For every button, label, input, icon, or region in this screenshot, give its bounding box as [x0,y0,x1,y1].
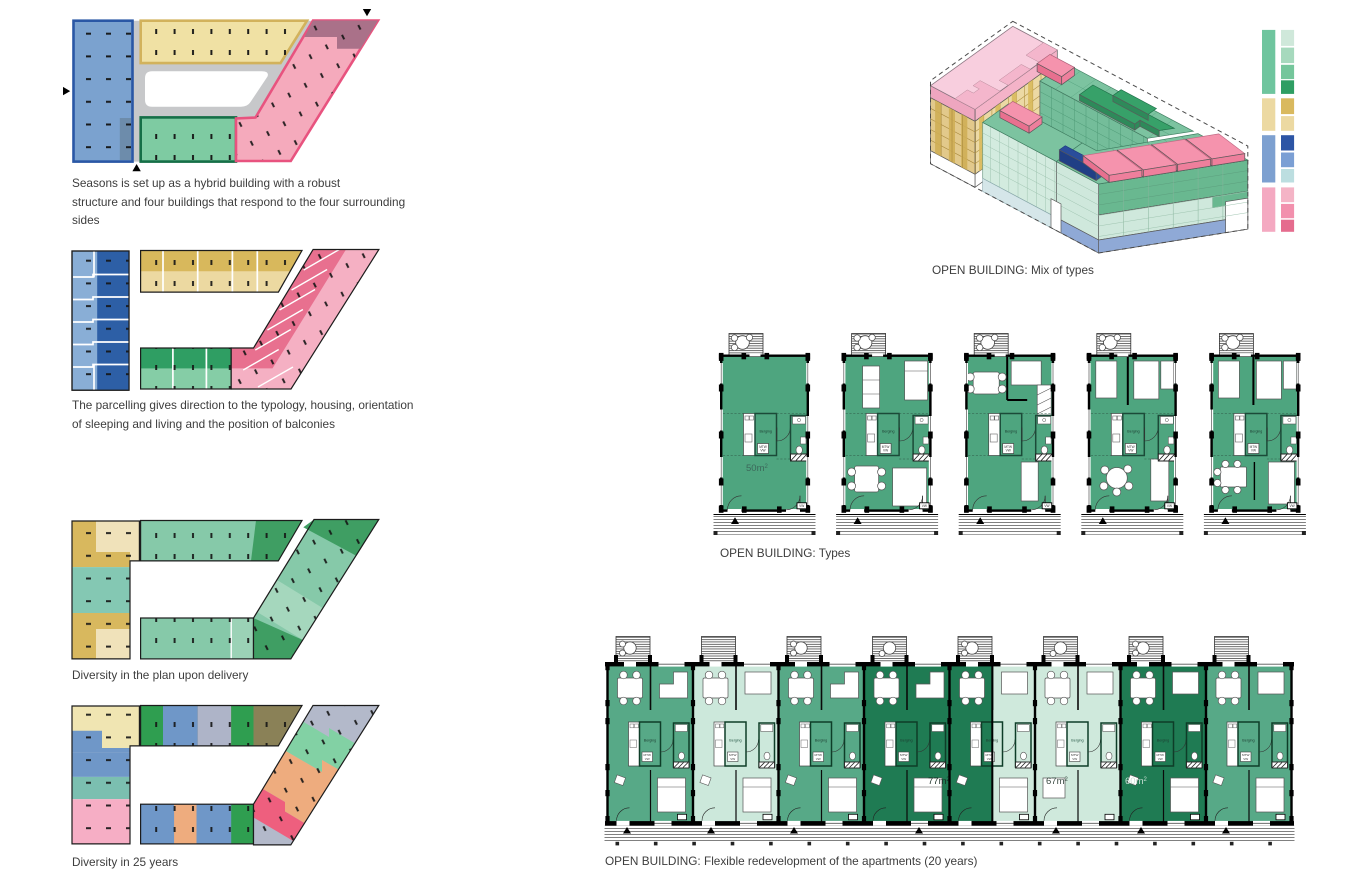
svg-text:VW: VW [799,504,804,508]
svg-text:VW: VW [1128,449,1133,453]
svg-text:VW: VW [760,449,765,453]
svg-text:Berging: Berging [760,430,772,434]
svg-text:VW: VW [1243,757,1248,761]
svg-text:Berging: Berging [815,739,827,743]
svg-text:VW: VW [1158,757,1163,761]
svg-text:Berging: Berging [1242,739,1254,743]
svg-text:Berging: Berging [882,430,894,434]
svg-text:VW: VW [1167,504,1172,508]
svg-text:VW: VW [987,757,992,761]
svg-text:Berging: Berging [644,739,656,743]
svg-text:Berging: Berging [900,739,912,743]
svg-text:VW: VW [901,757,906,761]
svg-text:VW: VW [1290,504,1295,508]
svg-text:Berging: Berging [729,739,741,743]
svg-text:VW: VW [1006,449,1011,453]
svg-text:Berging: Berging [1005,430,1017,434]
svg-text:VW: VW [1072,757,1077,761]
svg-text:VW: VW [730,757,735,761]
svg-text:VW: VW [1251,449,1256,453]
svg-text:VW: VW [922,504,927,508]
svg-text:VW: VW [645,757,650,761]
svg-text:VW: VW [883,449,888,453]
svg-text:VW: VW [816,757,821,761]
svg-text:Berging: Berging [1071,739,1083,743]
svg-text:Berging: Berging [1157,739,1169,743]
svg-text:Berging: Berging [1250,430,1262,434]
svg-text:VW: VW [1044,504,1049,508]
svg-text:Berging: Berging [1127,430,1139,434]
